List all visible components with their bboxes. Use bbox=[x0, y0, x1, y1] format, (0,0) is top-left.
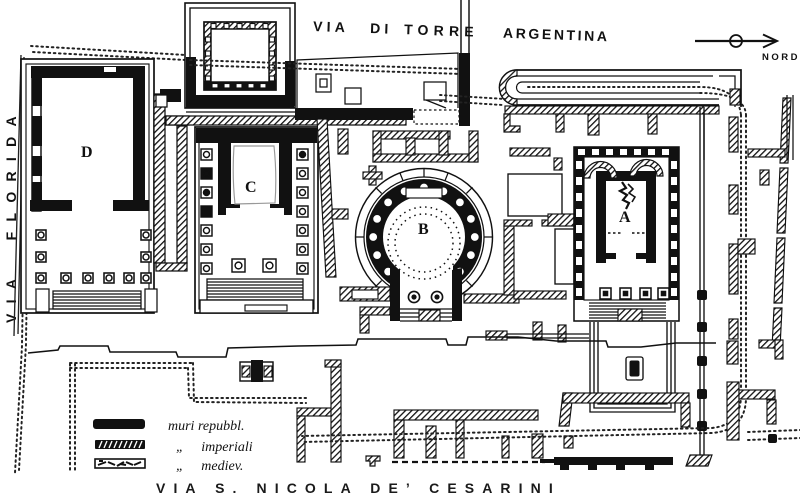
svg-text:A: A bbox=[619, 209, 631, 226]
svg-text:„ imperiali: „ imperiali bbox=[176, 440, 253, 455]
svg-text:muri repubbl.: muri repubbl. bbox=[168, 419, 244, 434]
svg-text:B: B bbox=[418, 221, 429, 238]
svg-text:C: C bbox=[245, 179, 257, 196]
svg-text:VIA S. NICOLA DE’ CESARIN: VIA S. NICOLA DE’ CESARINI bbox=[156, 480, 561, 496]
svg-text:„ mediev.: „ mediev. bbox=[176, 459, 243, 474]
svg-text:NORD: NORD bbox=[762, 52, 800, 63]
svg-text:D: D bbox=[81, 144, 93, 161]
